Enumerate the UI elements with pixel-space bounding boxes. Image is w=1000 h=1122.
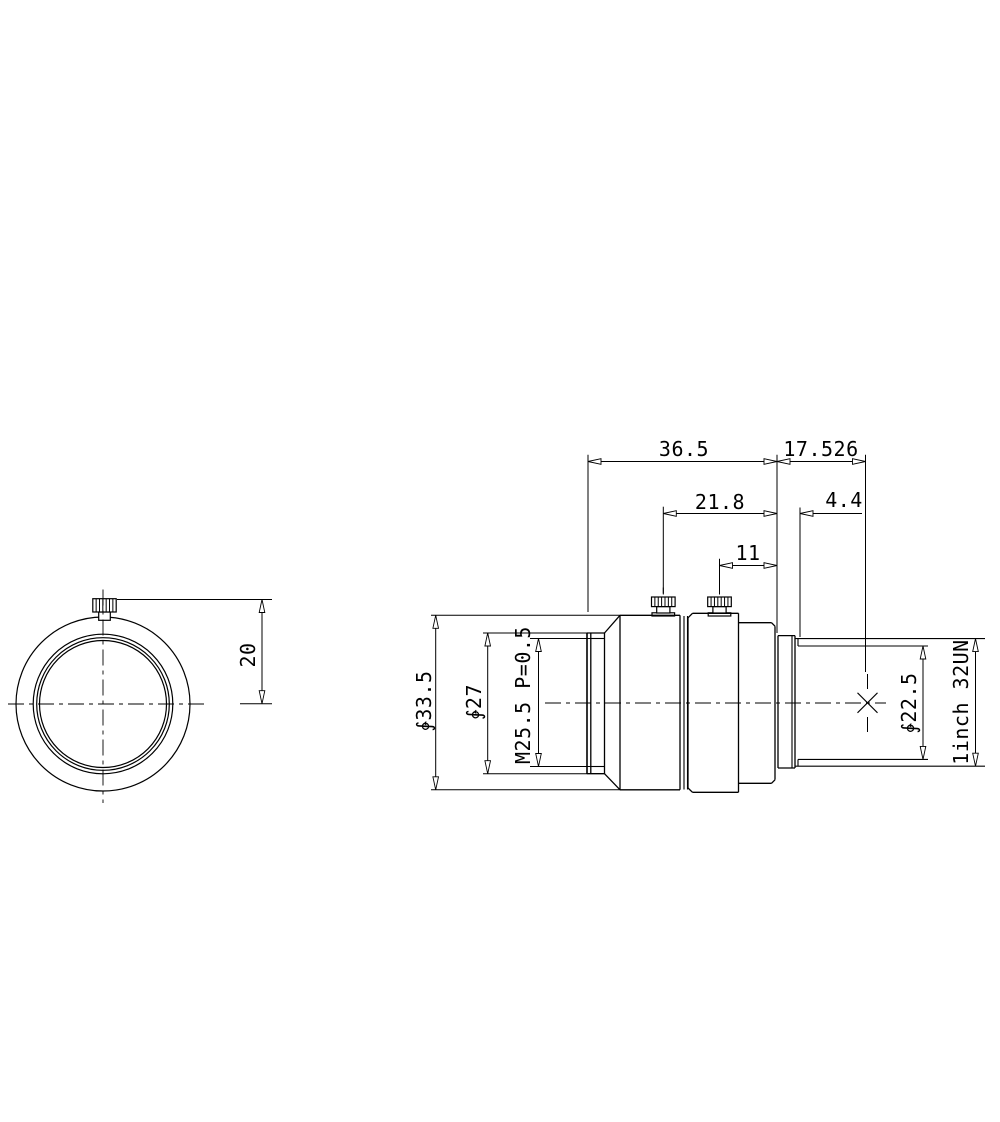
dim-text-m25-5: M25.5 P=0.5 xyxy=(511,626,535,764)
cone-top-edge xyxy=(605,615,621,633)
dim-text-36-5: 36.5 xyxy=(659,437,709,461)
arrow-21-8-left xyxy=(663,511,676,517)
lens-technical-drawing: 36.517.52621.84.41120∳33.5∳27M25.5 P=0.5… xyxy=(0,0,1000,1122)
dim-text-1inch-32un: 1inch 32UN xyxy=(949,639,973,764)
side-thumbscrew1-neck xyxy=(657,607,670,613)
front-thumbscrew-neck xyxy=(99,612,111,620)
arrow-11-left xyxy=(720,563,733,569)
arrow-d33-5-bottom xyxy=(433,777,439,790)
side-thumbscrew2-neck xyxy=(713,607,726,613)
arrow-m25-5-bottom xyxy=(536,754,542,767)
dim-text-d27: ∳27 xyxy=(462,684,486,720)
step-chamfer-top-right xyxy=(772,623,776,627)
dim-text-4-4: 4.4 xyxy=(825,488,863,512)
dim-text-11: 11 xyxy=(735,541,760,565)
arrow-11-right xyxy=(764,563,777,569)
arrow-4-4 xyxy=(800,511,813,517)
arrow-d22-5-top xyxy=(920,646,926,659)
dim-text-17-526: 17.526 xyxy=(783,437,858,461)
arrow-m25-5-top xyxy=(536,639,542,652)
arrow-d22-5-bottom xyxy=(920,746,926,759)
arrow-21-8-right xyxy=(764,511,777,517)
arrow-36-5-right xyxy=(764,459,777,465)
dim-text-d22-5: ∳22.5 xyxy=(897,672,921,733)
dim-text-20: 20 xyxy=(236,642,260,667)
barrel2-chamfer-top-left xyxy=(688,613,693,618)
arrow-d27-top xyxy=(485,633,491,646)
dim-text-21-8: 21.8 xyxy=(695,490,745,514)
arrow-1inch-top xyxy=(973,639,979,652)
barrel2-chamfer-bottom-left xyxy=(688,788,693,792)
arrow-20-top xyxy=(259,600,265,613)
arrow-d27-bottom xyxy=(485,761,491,774)
arrow-36-5-left xyxy=(588,459,601,465)
drawing-sheet: 36.517.52621.84.41120∳33.5∳27M25.5 P=0.5… xyxy=(0,0,1000,1122)
arrow-1inch-bottom xyxy=(973,753,979,766)
step-chamfer-bottom-right xyxy=(772,780,776,784)
arrow-d33-5-top xyxy=(433,615,439,628)
dim-text-d33-5: ∳33.5 xyxy=(412,670,436,731)
arrow-20-bottom xyxy=(259,691,265,704)
cone-bottom-edge xyxy=(605,774,621,790)
